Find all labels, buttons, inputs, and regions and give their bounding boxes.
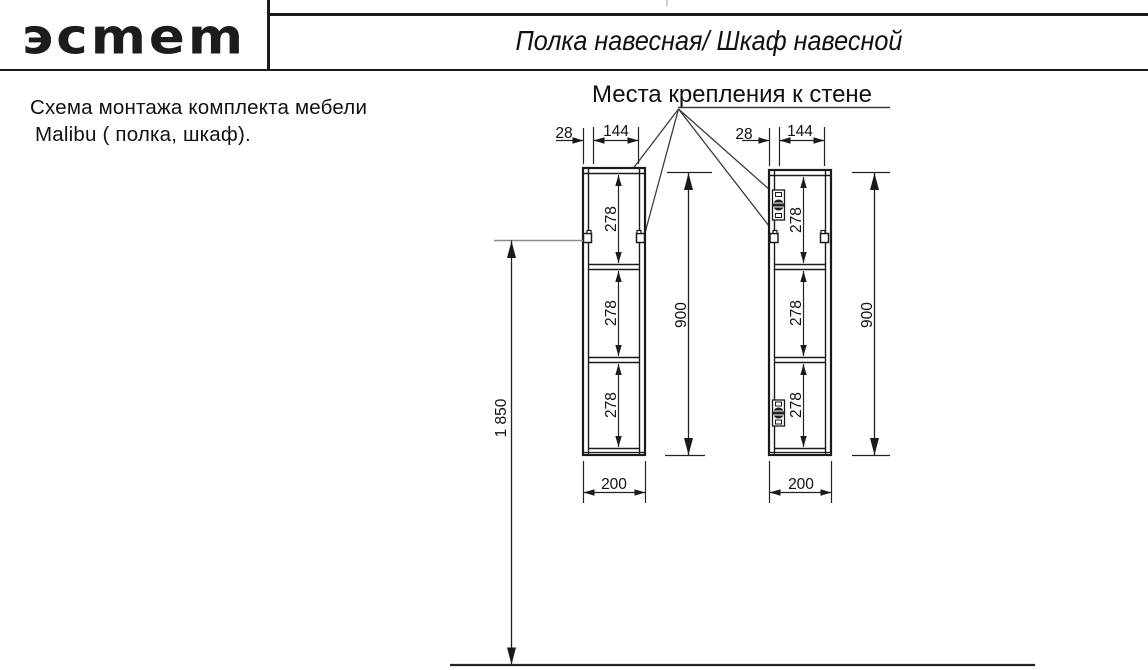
dim-offset-28: 28 (735, 126, 752, 143)
arrowhead-icon (814, 137, 825, 143)
wall-bracket-icon (770, 234, 778, 243)
wall-bracket-tab-icon (637, 231, 641, 234)
hinge-cup (773, 200, 784, 211)
wall-bracket-icon (584, 234, 592, 243)
arrowhead-icon (507, 241, 516, 258)
dim-height-900: 900 (673, 302, 690, 328)
arrowhead-icon (628, 137, 639, 143)
arrowhead-icon (684, 438, 693, 455)
dim-spacing-144: 144 (603, 123, 629, 140)
wall-bracket-tab-icon (821, 231, 825, 234)
arrowhead-icon (507, 648, 516, 665)
dim-spacing-144: 144 (787, 123, 813, 140)
dim-width-200: 200 (601, 476, 627, 493)
arrowhead-icon (573, 137, 584, 143)
hinge-screw (776, 402, 782, 406)
dim-mount-height-1850: 1 850 (493, 398, 510, 437)
arrowhead-icon (870, 173, 879, 190)
door-hinge-top-icon (773, 190, 785, 220)
mount-height-dimension: 1 850 (493, 241, 583, 665)
hinge-screw (776, 214, 782, 218)
mounting-diagram: Места крепления к стене 28 144 (0, 0, 1148, 670)
cabinet-section-dimensions: 278 278 278 (788, 177, 807, 447)
hinge-cup (773, 408, 784, 419)
dim-section-278: 278 (603, 206, 620, 232)
wall-fixing-label: Места крепления к стене (592, 81, 872, 108)
shelf-width-dimension: 200 (584, 461, 646, 503)
cabinet-width-dimension: 200 (770, 461, 832, 503)
dim-section-278: 278 (788, 392, 805, 418)
dim-offset-28: 28 (555, 125, 572, 142)
cabinet-height-dimension: 900 (852, 173, 890, 456)
wall-bracket-tab-icon (587, 231, 591, 234)
wall-bracket-icon (821, 234, 829, 243)
wall-bracket-tab-icon (773, 231, 777, 234)
arrowhead-icon (759, 137, 770, 143)
dim-width-200: 200 (788, 476, 814, 493)
cabinet-fixing-spacing-dimension: 28 144 (735, 123, 824, 166)
dim-section-278: 278 (788, 300, 805, 326)
dim-section-278: 278 (603, 300, 620, 326)
leader-line-2 (645, 109, 679, 233)
arrowhead-icon (635, 489, 646, 495)
hinge-screw (776, 193, 782, 197)
arrowhead-icon (870, 438, 879, 455)
dim-section-278: 278 (603, 392, 620, 418)
shelf-section-dimensions: 278 278 278 (603, 175, 622, 447)
shelf-fixing-spacing-dimension: 28 144 (555, 123, 638, 164)
arrowhead-icon (684, 173, 693, 190)
dim-height-900: 900 (859, 302, 876, 328)
door-hinge-bottom-icon (773, 400, 785, 426)
shelf-height-dimension: 900 (665, 173, 712, 456)
arrowhead-icon (584, 489, 595, 495)
arrowhead-icon (770, 489, 781, 495)
hinge-screw (776, 420, 782, 424)
arrowhead-icon (821, 489, 832, 495)
dim-section-278: 278 (788, 207, 805, 233)
wall-bracket-icon (637, 234, 645, 243)
mounting-scheme-sheet: { "header": { "logo_text": "эcmem", "tit… (0, 0, 1148, 670)
